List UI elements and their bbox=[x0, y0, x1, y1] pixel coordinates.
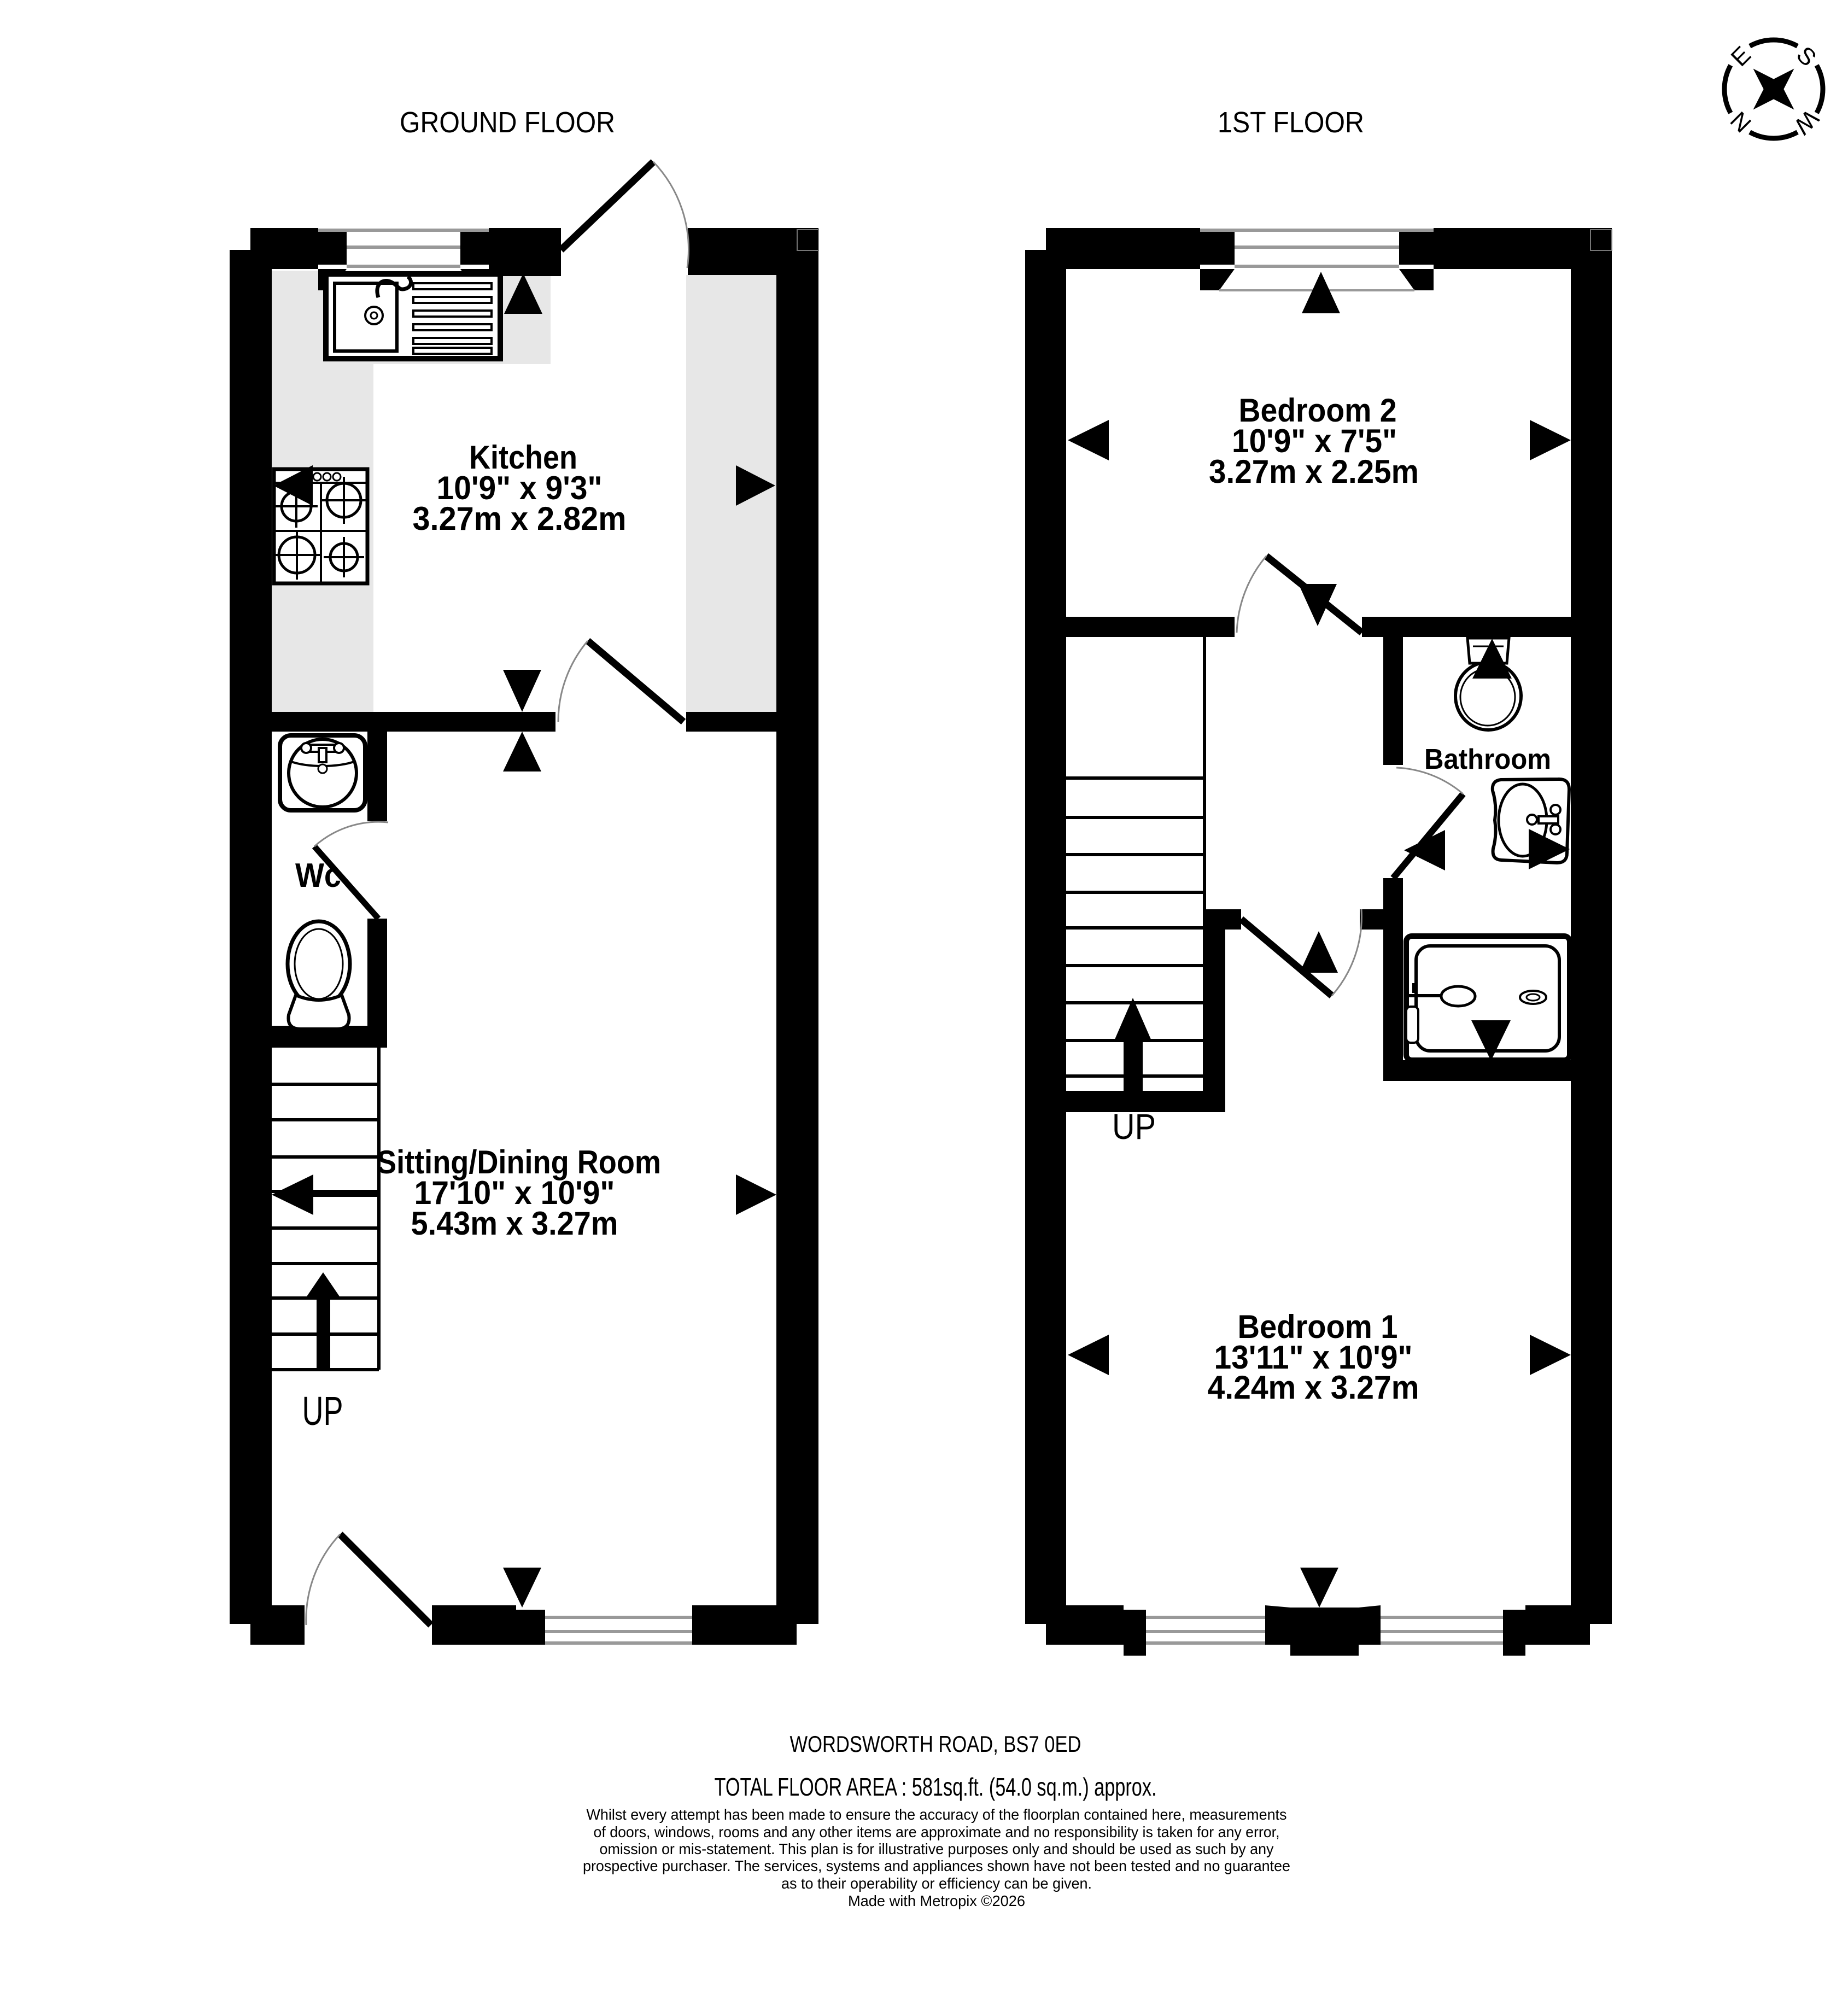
svg-text:WORDSWORTH ROAD, BS7 0ED: WORDSWORTH ROAD, BS7 0ED bbox=[790, 1731, 1081, 1757]
svg-text:1ST FLOOR: 1ST FLOOR bbox=[1218, 106, 1364, 139]
svg-text:as to their operability or eff: as to their operability or efficiency ca… bbox=[781, 1875, 1092, 1892]
svg-text:omission or mis-statement. Thi: omission or mis-statement. This plan is … bbox=[600, 1840, 1274, 1857]
svg-text:UP: UP bbox=[302, 1388, 343, 1434]
svg-text:prospective purchaser. The ser: prospective purchaser. The services, sys… bbox=[583, 1857, 1290, 1874]
svg-text:Whilst every attempt has been: Whilst every attempt has been made to en… bbox=[587, 1806, 1287, 1823]
svg-text:of doors, windows, rooms and a: of doors, windows, rooms and any other i… bbox=[594, 1823, 1280, 1840]
svg-text:TOTAL FLOOR AREA : 581sq.ft. (: TOTAL FLOOR AREA : 581sq.ft. (54.0 sq.m.… bbox=[715, 1773, 1157, 1801]
svg-text:Made with Metropix ©2026: Made with Metropix ©2026 bbox=[848, 1892, 1025, 1909]
svg-text:3.27m x 2.25m: 3.27m x 2.25m bbox=[1209, 453, 1419, 490]
svg-text:3.27m x 2.82m: 3.27m x 2.82m bbox=[413, 500, 627, 537]
svg-text:GROUND FLOOR: GROUND FLOOR bbox=[400, 106, 615, 139]
svg-text:4.24m x 3.27m: 4.24m x 3.27m bbox=[1208, 1369, 1419, 1406]
svg-text:Wc: Wc bbox=[295, 857, 341, 895]
svg-text:5.43m x 3.27m: 5.43m x 3.27m bbox=[411, 1205, 618, 1242]
svg-text:UP: UP bbox=[1112, 1106, 1156, 1147]
svg-text:Bathroom: Bathroom bbox=[1424, 744, 1551, 775]
